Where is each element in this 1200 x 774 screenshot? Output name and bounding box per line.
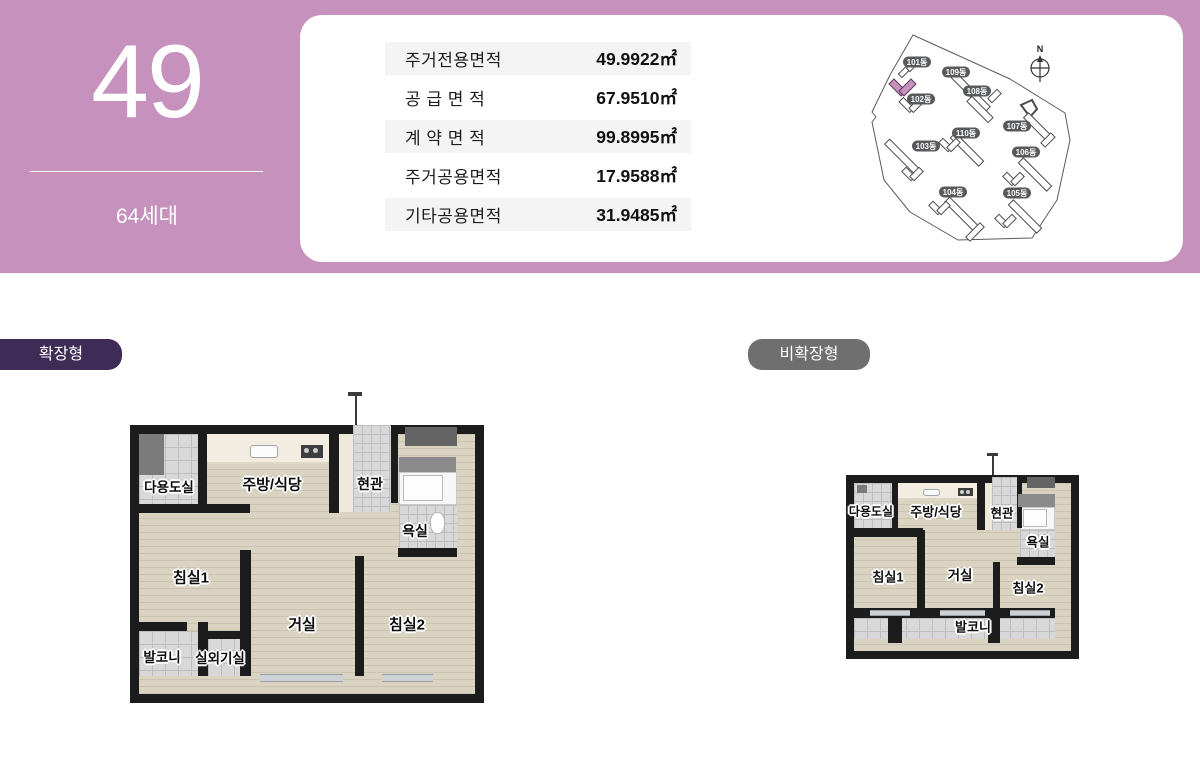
living-window xyxy=(260,674,343,682)
room-label-bedroom1: 침실1 xyxy=(173,567,209,588)
table-row: 주거공용면적 17.9588㎡ xyxy=(385,159,691,192)
entrance-marker-pole-right xyxy=(992,453,994,477)
entrance-marker-flag-right xyxy=(987,453,998,456)
room-label-entrance: 현관 xyxy=(990,503,1013,522)
building-badge-110: 110동 xyxy=(956,129,977,138)
bathtub-icon xyxy=(1023,509,1047,527)
area-label: 공 급 면 적 xyxy=(405,85,485,110)
highlighted-building xyxy=(889,79,916,96)
expanded-type-badge: 확장형 xyxy=(0,339,122,370)
room-label-entrance: 현관 xyxy=(357,474,383,494)
room-label-living: 거실 xyxy=(288,614,316,635)
room-label-ac-room: 실외기실 xyxy=(195,647,245,667)
building-badge-104: 104동 xyxy=(943,188,964,197)
entrance-area xyxy=(353,425,391,512)
area-value: 49.9922㎡ xyxy=(596,46,677,71)
room-label-utility: 다용도실 xyxy=(144,476,194,496)
building-badge-109: 109동 xyxy=(946,68,967,77)
room-label-kitchen: 주방/식당 xyxy=(910,502,961,521)
area-label: 주거전용면적 xyxy=(405,46,502,71)
room-label-bedroom1: 침실1 xyxy=(872,567,903,586)
elevator-core xyxy=(405,427,457,446)
building-badge-103: 103동 xyxy=(916,142,937,151)
toilet-icon xyxy=(430,512,445,534)
bedroom2-door xyxy=(1010,610,1050,616)
room-label-balcony: 발코니 xyxy=(143,646,180,666)
floorplan-non-expanded: 다용도실 주방/식당 현관 욕실 침실1 거실 침실2 발코니 xyxy=(846,475,1079,659)
bedroom1-door xyxy=(870,610,910,616)
unit-summary: 49 64세대 xyxy=(0,0,294,273)
divider xyxy=(30,171,263,172)
room-label-utility: 다용도실 xyxy=(849,503,893,520)
building-badge-105: 105동 xyxy=(1007,189,1028,198)
area-value: 31.9485㎡ xyxy=(596,202,677,227)
stove-icon xyxy=(301,445,323,458)
living-door xyxy=(940,610,985,616)
area-label: 계 약 면 적 xyxy=(405,124,485,149)
floorplan-expanded: 다용도실 주방/식당 현관 욕실 침실1 거실 침실2 발코니 실외기실 xyxy=(130,425,484,703)
building-badge-107: 107동 xyxy=(1007,122,1028,131)
utility-shaft xyxy=(857,485,867,493)
compass-icon xyxy=(1031,55,1049,82)
area-value: 67.9510㎡ xyxy=(596,85,677,110)
compass-label: N xyxy=(1037,44,1044,54)
room-label-balcony: 발코니 xyxy=(955,617,991,636)
entrance-marker-pole-left xyxy=(355,392,357,426)
entrance-marker-flag-left xyxy=(348,392,362,396)
table-row: 계 약 면 적 99.8995㎡ xyxy=(385,120,691,153)
building-badge-101: 101동 xyxy=(907,58,928,67)
unit-type-number: 49 xyxy=(0,28,294,136)
bathtub-icon xyxy=(403,475,443,501)
table-row: 주거전용면적 49.9922㎡ xyxy=(385,42,691,75)
stove-icon xyxy=(958,488,973,496)
area-value: 17.9588㎡ xyxy=(596,163,677,188)
expanded-type-label: 확장형 xyxy=(39,346,83,363)
site-map: N 101동 102동 103동 104동 105동 106동 107동 108… xyxy=(855,25,1095,260)
table-row: 공 급 면 적 67.9510㎡ xyxy=(385,81,691,114)
room-label-bedroom2: 침실2 xyxy=(389,614,425,635)
area-label: 주거공용면적 xyxy=(405,163,502,188)
building-badge-102: 102동 xyxy=(911,95,932,104)
sink-icon xyxy=(250,445,278,458)
top-banner: 49 64세대 주거전용면적 49.9922㎡ 공 급 면 적 67.9510㎡… xyxy=(0,0,1200,273)
building-badge-108: 108동 xyxy=(967,87,988,96)
household-count: 64세대 xyxy=(0,200,294,230)
service-shaft xyxy=(1018,494,1055,507)
table-row: 기타공용면적 31.9485㎡ xyxy=(385,198,691,231)
room-label-living: 거실 xyxy=(948,564,973,584)
non-expanded-type-badge: 비확장형 xyxy=(748,339,870,370)
utility-shaft xyxy=(139,434,164,475)
room-label-kitchen: 주방/식당 xyxy=(242,474,301,495)
area-value: 99.8995㎡ xyxy=(596,124,677,149)
room-label-bathroom: 욕실 xyxy=(1026,532,1049,551)
room-label-bathroom: 욕실 xyxy=(402,521,428,541)
info-card: 주거전용면적 49.9922㎡ 공 급 면 적 67.9510㎡ 계 약 면 적… xyxy=(300,15,1183,262)
service-shaft xyxy=(399,457,456,472)
bedroom2-window xyxy=(382,674,433,682)
hallway-strip xyxy=(339,434,353,512)
area-label: 기타공용면적 xyxy=(405,202,502,227)
area-table: 주거전용면적 49.9922㎡ 공 급 면 적 67.9510㎡ 계 약 면 적… xyxy=(385,42,691,237)
room-label-bedroom2: 침실2 xyxy=(1012,578,1043,597)
sink-icon xyxy=(923,489,940,496)
non-expanded-type-label: 비확장형 xyxy=(780,346,839,363)
building-badge-106: 106동 xyxy=(1016,148,1037,157)
elevator-core xyxy=(1027,477,1055,488)
